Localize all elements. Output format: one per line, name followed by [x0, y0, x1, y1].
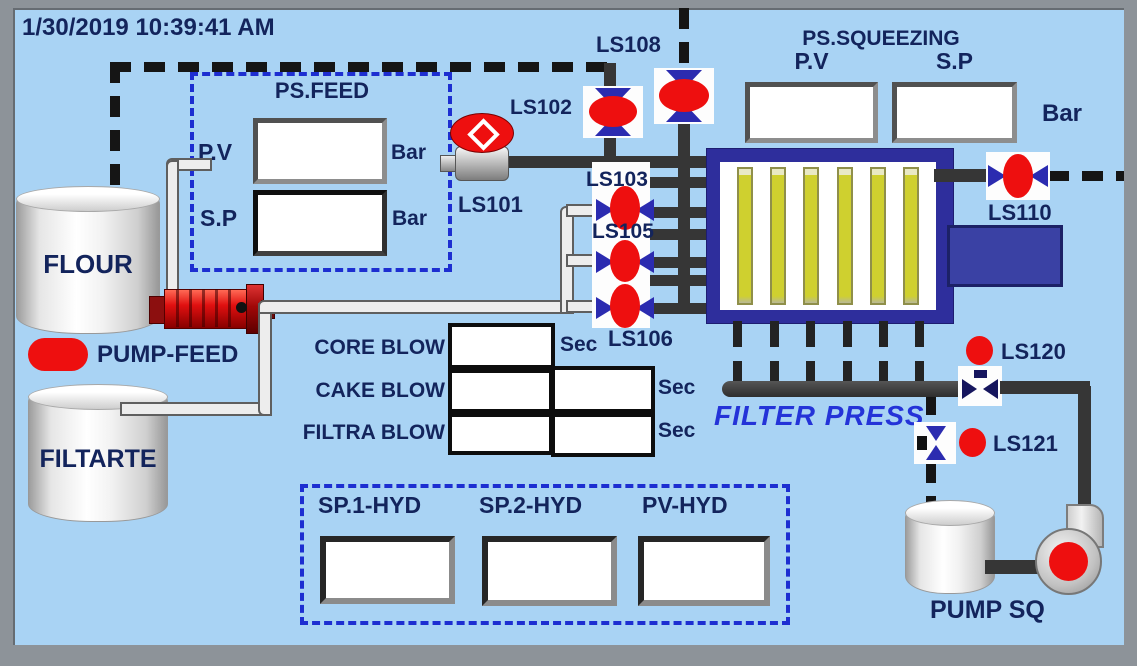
hmi-screen: 1/30/2019 10:39:41 AM PS.FEED P.V Bar S.… — [0, 0, 1137, 666]
drain-pipe — [879, 321, 888, 383]
ls121-status-lamp[interactable] — [959, 428, 986, 457]
core-blow-unit: Sec — [560, 334, 597, 355]
ps-squeezing-unit: Bar — [1042, 102, 1082, 126]
cake-blow-unit: Sec — [658, 377, 695, 398]
drain-pipe — [770, 321, 779, 383]
valve-actuator-icon — [974, 370, 987, 378]
ps-feed-title: PS.FEED — [252, 80, 392, 102]
ps-squeezing-pv-label: P.V — [745, 50, 878, 73]
sp2-hyd-label: SP.2-HYD — [479, 494, 582, 517]
valve-red-disc-icon — [610, 240, 640, 282]
slurry-riser-pipe — [258, 303, 272, 416]
pump-sq-label: PUMP SQ — [930, 598, 1045, 623]
press-plate — [803, 167, 819, 305]
ls120-valve[interactable] — [958, 366, 1002, 406]
pump-feed-label: PUMP-FEED — [97, 343, 238, 367]
ls108-label: LS108 — [596, 34, 661, 56]
press-plate — [737, 167, 753, 305]
press-outlet-pipe — [934, 169, 990, 182]
valve-red-disc-icon — [589, 96, 637, 127]
ls101-label: LS101 — [458, 194, 523, 216]
valve-red-disc-icon — [610, 284, 640, 328]
press-plate — [870, 167, 886, 305]
ps-squeezing-sp-label: S.P — [892, 50, 1017, 73]
filtrate-collection-pipe — [722, 381, 966, 397]
valve-triangle-down-icon — [926, 426, 946, 441]
pump-feed-status-lamp[interactable] — [28, 338, 88, 371]
press-plate — [903, 167, 919, 305]
press-head-cylinder — [947, 225, 1063, 287]
ls108-valve[interactable] — [654, 68, 714, 124]
dashed-line-ls108-top — [679, 8, 689, 70]
core-blow-label: CORE BLOW — [285, 337, 445, 358]
squeeze-tank — [905, 510, 995, 594]
manifold-stub-2 — [650, 229, 707, 240]
slurry-main-pipe — [258, 300, 574, 314]
drain-pipe — [806, 321, 815, 383]
ps-feed-sp-value[interactable] — [253, 190, 387, 256]
filter-press-plates — [720, 162, 936, 310]
squeeze-pump[interactable] — [1035, 528, 1102, 595]
ps-feed-sp-label: S.P — [200, 207, 237, 230]
pv-hyd-label: PV-HYD — [642, 494, 728, 517]
filtrate-outlet-pipe — [120, 402, 272, 416]
manifold-stub-3 — [650, 275, 707, 286]
ls120-status-lamp[interactable] — [966, 336, 993, 365]
filtra-blow-value2[interactable] — [551, 413, 655, 457]
filter-press-label: FILTER PRESS — [714, 402, 925, 430]
press-plate — [837, 167, 853, 305]
ls106-label: LS106 — [608, 328, 673, 350]
press-plate — [770, 167, 786, 305]
filtra-blow-unit: Sec — [658, 420, 695, 441]
ls121-valve[interactable] — [914, 422, 956, 464]
dashed-line-top-header — [110, 62, 610, 72]
ls102-label: LS102 — [510, 97, 572, 118]
dashed-line-flour-riser — [110, 62, 120, 200]
feed-pump-bolt — [236, 302, 247, 313]
filtra-blow-value1[interactable] — [448, 413, 553, 455]
filtrate-tank-label: FILTARTE — [29, 445, 167, 474]
ls110-valve[interactable] — [986, 152, 1050, 200]
ls106-valve[interactable] — [596, 288, 654, 328]
ls121-label: LS121 — [993, 433, 1058, 455]
ls105-valve[interactable] — [596, 242, 654, 282]
valve-triangle-right-icon — [962, 379, 977, 399]
ls105-label: LS105 — [592, 221, 654, 242]
valve-triangle-up-icon — [926, 445, 946, 460]
valve-triangle-left-icon — [983, 379, 998, 399]
valve-red-disc-icon — [659, 79, 709, 112]
drain-pipe — [915, 321, 924, 383]
ps-squeezing-pv-value[interactable] — [745, 82, 878, 143]
dashed-line-ls110-out — [1048, 171, 1124, 181]
core-blow-value[interactable] — [448, 323, 555, 369]
pump-feed-pressure-tap-v — [166, 160, 179, 292]
ls103-label: LS103 — [586, 169, 648, 190]
ps-feed-pv-unit: Bar — [391, 142, 426, 163]
timestamp: 1/30/2019 10:39:41 AM — [22, 16, 275, 40]
ps-squeezing-title: PS.SQUEEZING — [745, 28, 1017, 49]
sp2-hyd-value[interactable] — [482, 536, 617, 606]
flour-tank: FLOUR — [16, 196, 160, 334]
ps-squeezing-sp-value[interactable] — [892, 82, 1017, 143]
ps-feed-sp-unit: Bar — [392, 208, 427, 229]
sq-pump-inlet-pipe — [985, 560, 1041, 574]
ps-feed-pv-value[interactable] — [253, 118, 387, 184]
valve-red-disc-icon — [1003, 154, 1033, 198]
cake-blow-value2[interactable] — [551, 366, 655, 413]
sq-suction-pipe-h — [1000, 381, 1090, 394]
flour-tank-label: FLOUR — [17, 249, 159, 280]
drain-pipe — [733, 321, 742, 383]
ls120-label: LS120 — [1001, 341, 1066, 363]
cake-blow-value1[interactable] — [448, 369, 553, 413]
cake-blow-label: CAKE BLOW — [285, 380, 445, 401]
drain-pipe — [843, 321, 852, 383]
sp1-hyd-value[interactable] — [320, 536, 455, 604]
ls110-label: LS110 — [988, 202, 1052, 224]
squeeze-pump-status — [1049, 542, 1088, 581]
sq-suction-pipe-v — [1078, 386, 1091, 522]
feed-pump-ribs — [176, 289, 238, 327]
ls102-valve[interactable] — [583, 86, 643, 138]
filtra-blow-label: FILTRA BLOW — [285, 422, 445, 443]
manifold-stub-1 — [650, 177, 707, 188]
pv-hyd-value[interactable] — [638, 536, 770, 606]
sp1-hyd-label: SP.1-HYD — [318, 494, 421, 517]
